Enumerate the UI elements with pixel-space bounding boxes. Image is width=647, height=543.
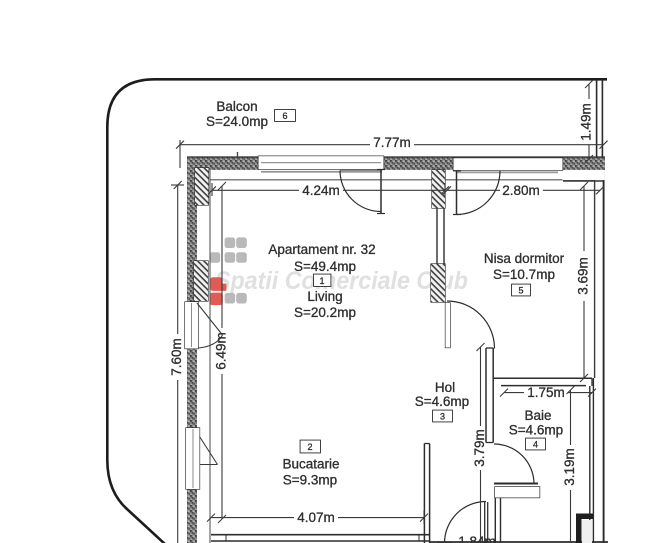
svg-text:Apartament nr. 32: Apartament nr. 32 — [268, 242, 375, 257]
svg-text:1.49m: 1.49m — [579, 103, 594, 141]
svg-text:5: 5 — [518, 286, 523, 296]
svg-text:S=4.6mp: S=4.6mp — [509, 423, 563, 438]
svg-text:3.79m: 3.79m — [472, 429, 487, 467]
svg-text:3.69m: 3.69m — [576, 257, 591, 295]
svg-text:1.84m: 1.84m — [458, 534, 496, 543]
svg-text:6: 6 — [282, 111, 287, 121]
svg-text:S=4.6mp: S=4.6mp — [415, 394, 469, 409]
svg-text:4.07m: 4.07m — [297, 510, 335, 525]
svg-text:2: 2 — [307, 442, 312, 452]
svg-text:S=49.4mp: S=49.4mp — [294, 259, 356, 274]
svg-text:4.24m: 4.24m — [302, 183, 340, 198]
svg-text:3.19m: 3.19m — [562, 448, 577, 486]
svg-text:4: 4 — [533, 440, 538, 450]
svg-text:1.75m: 1.75m — [527, 385, 565, 400]
svg-text:1: 1 — [319, 276, 324, 286]
svg-text:Baie: Baie — [524, 408, 551, 423]
svg-text:Nisa dormitor: Nisa dormitor — [484, 251, 565, 266]
svg-text:7.60m: 7.60m — [169, 338, 184, 376]
svg-text:2.80m: 2.80m — [502, 183, 540, 198]
svg-text:6.49m: 6.49m — [214, 332, 229, 370]
svg-text:S=20.2mp: S=20.2mp — [294, 305, 356, 320]
svg-text:Living: Living — [307, 289, 342, 304]
svg-text:3: 3 — [440, 412, 445, 422]
svg-text:S=10.7mp: S=10.7mp — [493, 267, 555, 282]
svg-text:7.77m: 7.77m — [373, 135, 411, 150]
svg-text:Bucatarie: Bucatarie — [282, 457, 339, 472]
svg-text:Hol: Hol — [435, 380, 455, 395]
svg-text:S=24.0mp: S=24.0mp — [206, 114, 268, 129]
svg-text:S=9.3mp: S=9.3mp — [283, 473, 337, 488]
svg-text:Balcon: Balcon — [216, 99, 257, 114]
